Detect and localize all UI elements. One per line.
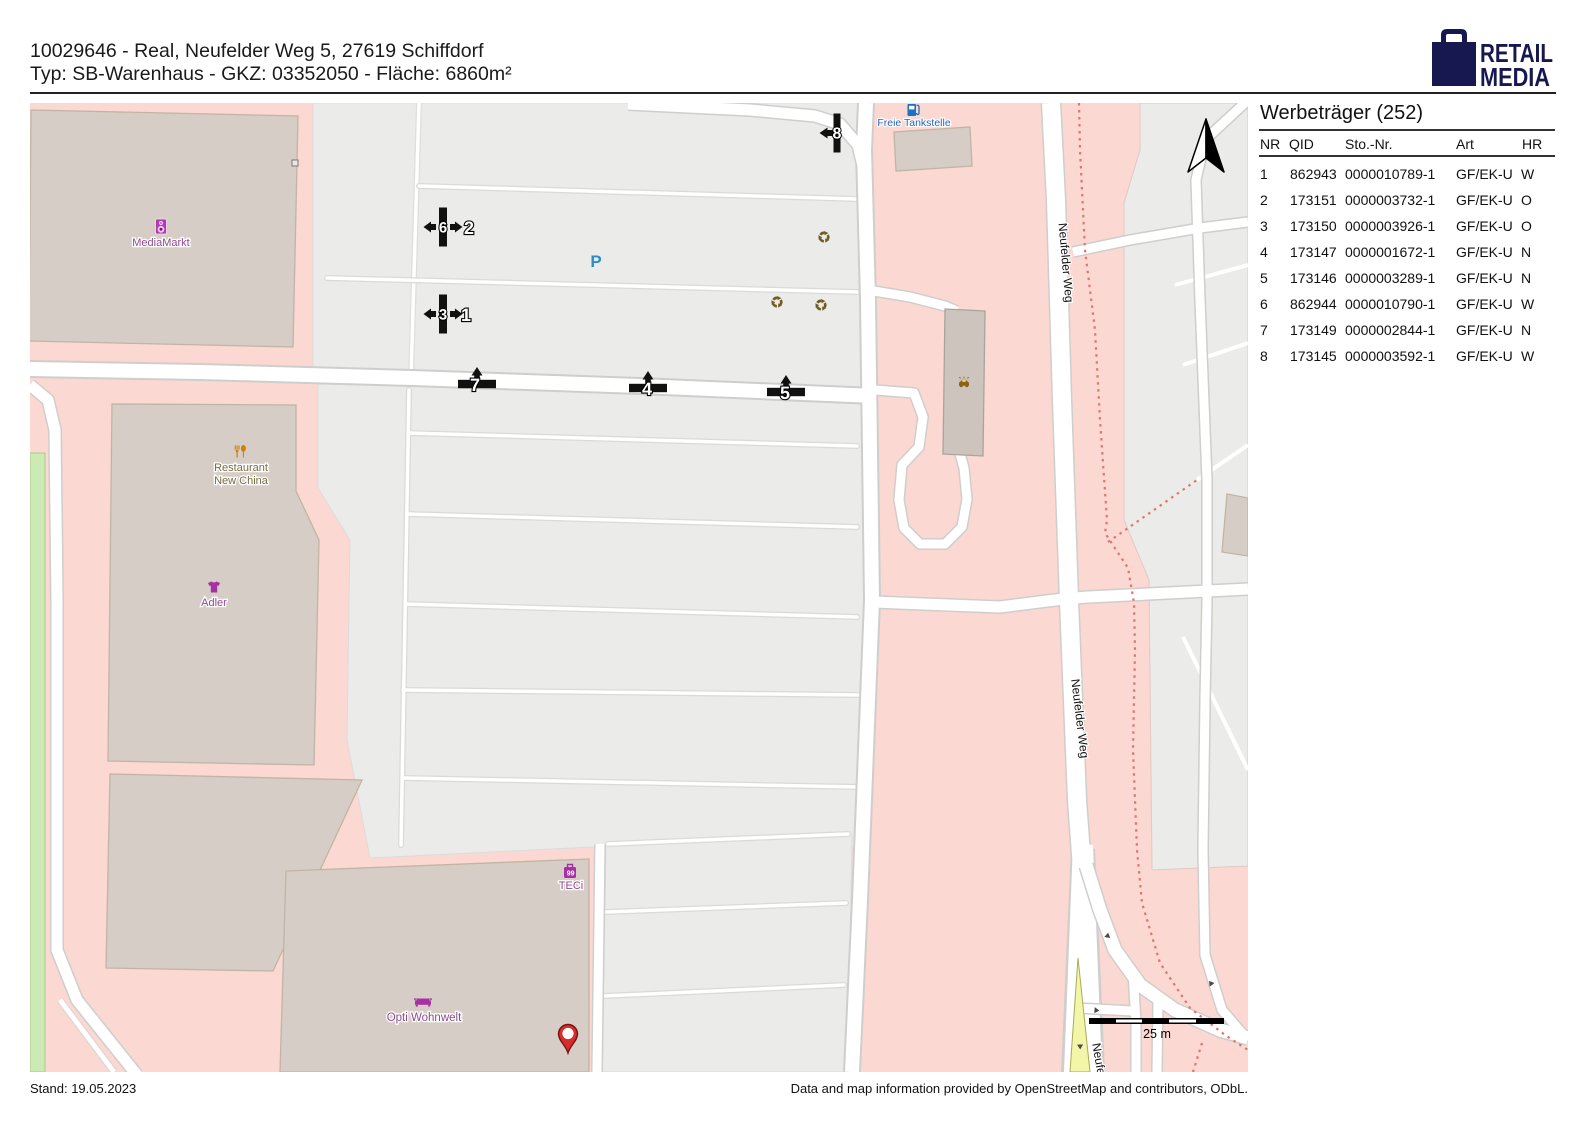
svg-text:TECi: TECi	[559, 880, 583, 892]
svg-text:Adler: Adler	[201, 597, 227, 609]
svg-text:3: 3	[439, 306, 447, 323]
svg-text:Opti Wohnwelt: Opti Wohnwelt	[387, 1012, 462, 1024]
svg-text:99: 99	[567, 871, 575, 878]
svg-text:Freie Tankstelle: Freie Tankstelle	[877, 117, 951, 129]
svg-text:5: 5	[780, 383, 790, 403]
svg-text:MEDIA: MEDIA	[1480, 62, 1550, 90]
svg-text:1: 1	[461, 305, 471, 325]
svg-text:New China: New China	[214, 475, 269, 487]
svg-text:8: 8	[833, 125, 842, 142]
svg-text:Restaurant: Restaurant	[214, 462, 268, 474]
svg-text:2: 2	[464, 218, 474, 238]
svg-text:MediaMarkt: MediaMarkt	[132, 237, 189, 249]
svg-text:25 m: 25 m	[1143, 1027, 1171, 1041]
svg-text:6: 6	[439, 219, 447, 236]
svg-text:7: 7	[470, 375, 480, 395]
svg-text:P: P	[590, 252, 601, 271]
svg-text:4: 4	[642, 379, 652, 399]
